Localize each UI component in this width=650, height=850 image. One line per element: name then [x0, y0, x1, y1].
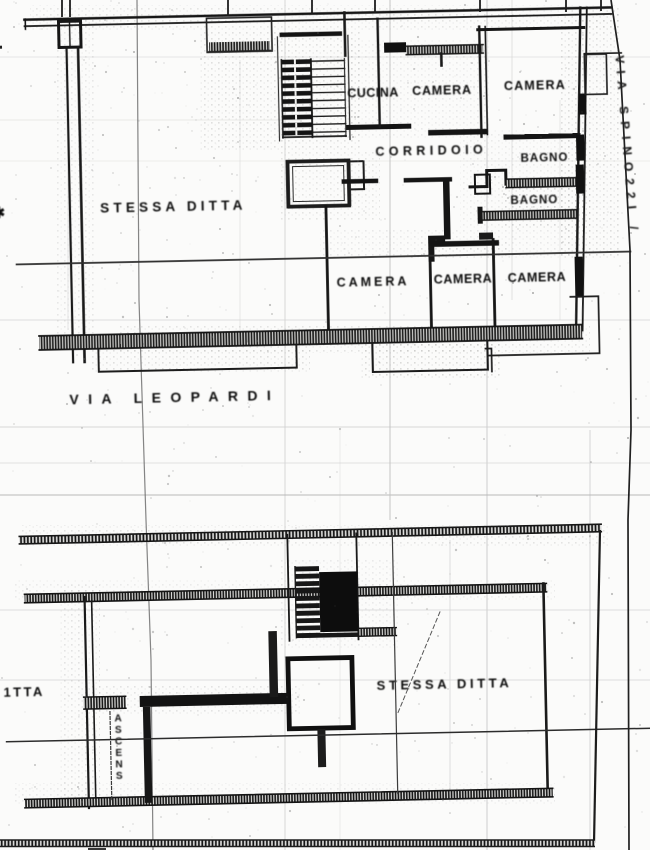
svg-text:CAMERA: CAMERA — [434, 271, 493, 286]
svg-text:STESSA DITTA: STESSA DITTA — [376, 675, 512, 693]
svg-text:1TTA: 1TTA — [3, 684, 44, 700]
svg-text:N: N — [115, 759, 122, 770]
svg-text:E: E — [115, 748, 122, 759]
svg-text:CUCINA: CUCINA — [347, 85, 399, 100]
svg-text:✱: ✱ — [0, 205, 6, 222]
svg-text:S: S — [115, 725, 122, 736]
svg-text:STESSA DITTA: STESSA DITTA — [100, 198, 247, 216]
svg-text:CAMERA: CAMERA — [504, 78, 566, 93]
svg-text:BAGNO: BAGNO — [510, 194, 558, 207]
svg-text:CAMERA: CAMERA — [336, 274, 409, 290]
svg-text:CAMERA: CAMERA — [508, 270, 567, 285]
svg-text:C: C — [115, 736, 122, 747]
svg-text:S: S — [116, 771, 123, 782]
svg-text:A: A — [114, 713, 121, 724]
svg-text:CAMERA: CAMERA — [412, 83, 472, 98]
svg-text:CORRIDOIO: CORRIDOIO — [375, 143, 487, 159]
svg-text:BAGNO: BAGNO — [520, 152, 568, 165]
